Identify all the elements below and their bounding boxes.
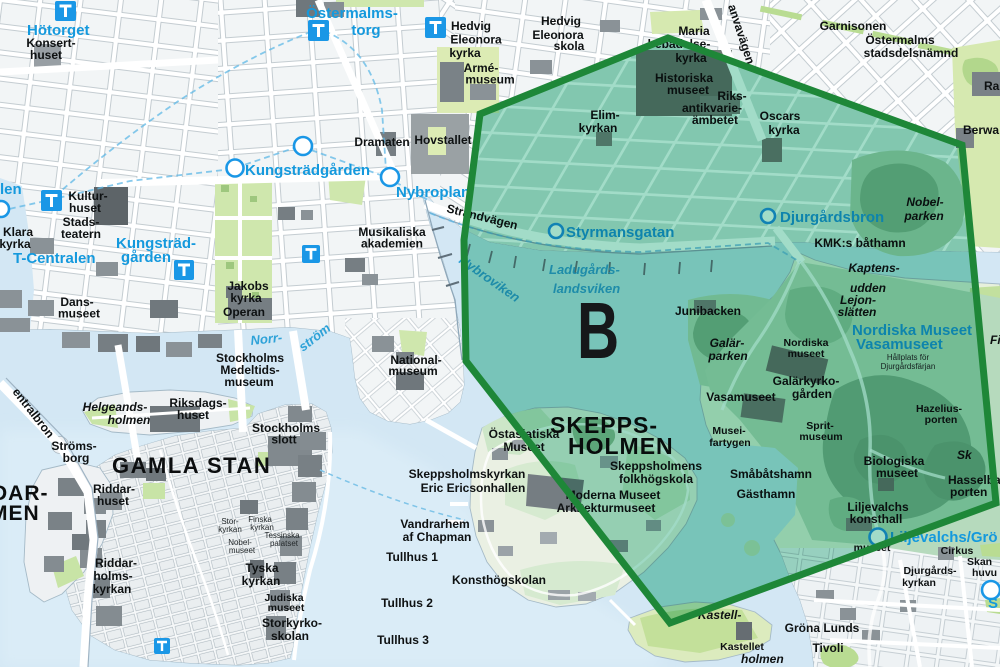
svg-text:Riddar-huset: Riddar-huset	[93, 482, 135, 508]
svg-text:Ra: Ra	[984, 79, 1000, 93]
svg-text:len: len	[0, 181, 22, 198]
svg-text:Kastellet: Kastellet	[720, 641, 764, 653]
svg-text:GAMLA STAN: GAMLA STAN	[112, 453, 271, 478]
svg-text:Garnisonen: Garnisonen	[820, 19, 887, 33]
svg-text:Musikaliskaakademien: Musikaliskaakademien	[358, 225, 426, 251]
svg-text:Vandrarhemaf Chapman: Vandrarhemaf Chapman	[400, 517, 471, 544]
svg-text:B: B	[577, 286, 619, 375]
svg-text:Riddar-holms-kyrkan: Riddar-holms-kyrkan	[93, 556, 137, 596]
svg-text:Stor-kyrkan: Stor-kyrkan	[218, 517, 242, 534]
svg-text:Tullhus 2: Tullhus 2	[381, 596, 433, 610]
svg-text:T-Centralen: T-Centralen	[13, 250, 96, 267]
svg-text:Fi: Fi	[990, 333, 1000, 347]
svg-text:Nobel-museet: Nobel-museet	[228, 538, 256, 555]
svg-text:Nybroplan: Nybroplan	[396, 184, 470, 201]
svg-text:Tullhus 1: Tullhus 1	[386, 550, 438, 564]
svg-text:Klarakyrka: Klarakyrka	[0, 225, 33, 251]
svg-text:SkeppsholmskyrkanEric Ericsonh: SkeppsholmskyrkanEric Ericsonhallen	[409, 467, 526, 495]
svg-text:holmen: holmen	[741, 652, 784, 666]
svg-text:Berwa: Berwa	[963, 123, 999, 137]
svg-text:Dramaten: Dramaten	[354, 135, 409, 149]
svg-text:Hovstallet: Hovstallet	[414, 133, 471, 147]
svg-text:Tyskakyrkan: Tyskakyrkan	[242, 561, 281, 588]
svg-text:Konsthögskolan: Konsthögskolan	[452, 573, 546, 587]
svg-text:Judiskamuseet: Judiskamuseet	[264, 592, 304, 614]
svg-text:Tullhus 3: Tullhus 3	[377, 633, 429, 647]
svg-text:S: S	[988, 595, 998, 612]
svg-text:Kungsträdgården: Kungsträdgården	[245, 162, 370, 179]
svg-text:National-museum: National-museum	[388, 353, 441, 378]
svg-text:Tessinskapalatset: Tessinskapalatset	[264, 531, 300, 548]
svg-text:Finskakyrkan: Finskakyrkan	[248, 515, 274, 532]
